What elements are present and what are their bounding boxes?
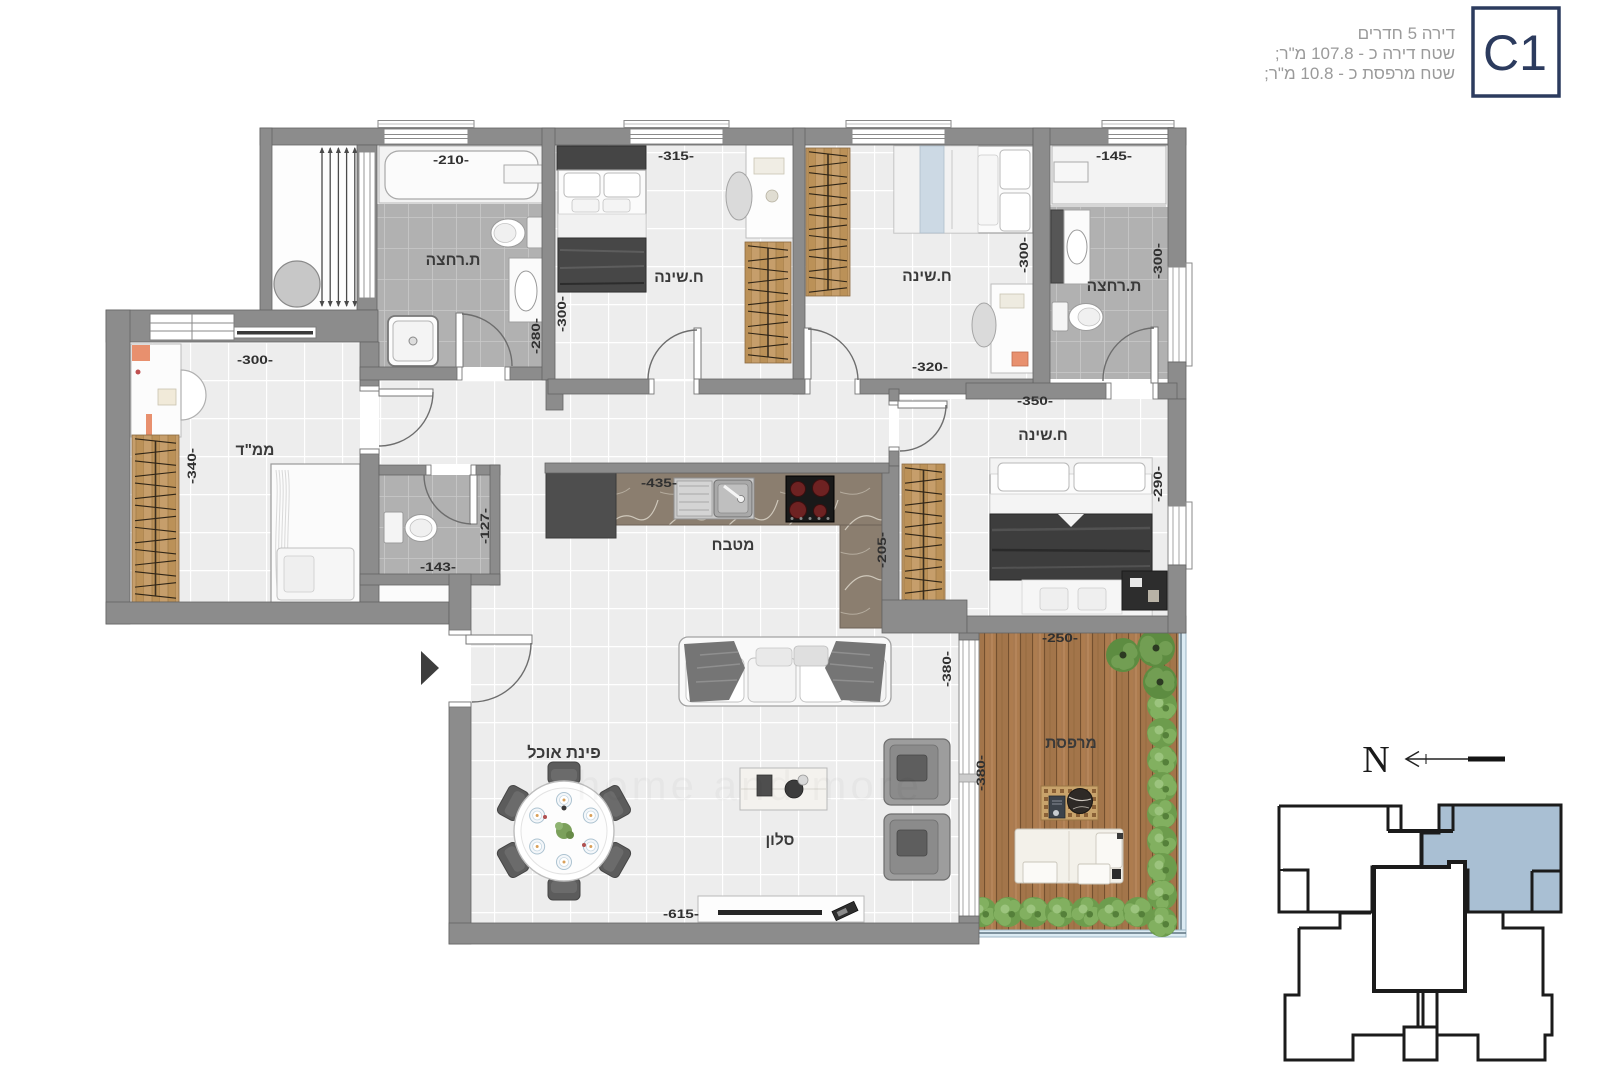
svg-text:ת.רחצה: ת.רחצה (426, 252, 481, 269)
svg-text:-315-: -315- (658, 149, 694, 163)
svg-text:ת.רחצה: ת.רחצה (1087, 278, 1142, 295)
svg-text:סלון: סלון (765, 832, 794, 849)
svg-text:-290-: -290- (1151, 466, 1165, 502)
svg-text:ח.שינה: ח.שינה (902, 268, 951, 285)
svg-text:ח.שינה: ח.שינה (654, 269, 703, 286)
svg-text:מרפסת: מרפסת (1045, 735, 1097, 752)
svg-text:-127-: -127- (478, 508, 492, 544)
svg-text:-320-: -320- (912, 360, 948, 374)
svg-text:-145-: -145- (1096, 149, 1132, 163)
svg-text:-435-: -435- (641, 476, 677, 490)
svg-text:-300-: -300- (237, 353, 273, 367)
svg-text:N: N (1362, 739, 1389, 781)
svg-text:-300-: -300- (1017, 237, 1031, 273)
svg-text:ממ"ד: ממ"ד (236, 442, 275, 459)
svg-text:-380-: -380- (974, 755, 988, 791)
svg-text:-205-: -205- (875, 532, 889, 568)
svg-text:home and more: home and more (577, 762, 923, 809)
svg-text:-340-: -340- (185, 448, 199, 484)
svg-text:דירה 5 חדרים: דירה 5 חדרים (1358, 24, 1455, 43)
svg-text:-300-: -300- (1151, 243, 1165, 279)
svg-text:-210-: -210- (433, 153, 469, 167)
svg-text:-350-: -350- (1017, 394, 1053, 408)
svg-text:-250-: -250- (1042, 631, 1078, 645)
svg-text:-280-: -280- (529, 318, 543, 354)
svg-text:-300-: -300- (555, 296, 569, 332)
svg-text:ח.שינה: ח.שינה (1018, 427, 1067, 444)
svg-text:שטח מרפסת כ - 10.8 מ"ר;: שטח מרפסת כ - 10.8 מ"ר; (1264, 64, 1455, 83)
svg-text:מטבח: מטבח (712, 537, 755, 554)
svg-text:C1: C1 (1483, 25, 1547, 81)
svg-text:שטח דירה כ - 107.8 מ"ר;: שטח דירה כ - 107.8 מ"ר; (1275, 44, 1455, 63)
svg-text:פינת אוכל: פינת אוכל (527, 744, 601, 762)
svg-text:-380-: -380- (940, 651, 954, 687)
svg-text:-143-: -143- (420, 560, 456, 574)
svg-text:-615-: -615- (663, 907, 699, 921)
